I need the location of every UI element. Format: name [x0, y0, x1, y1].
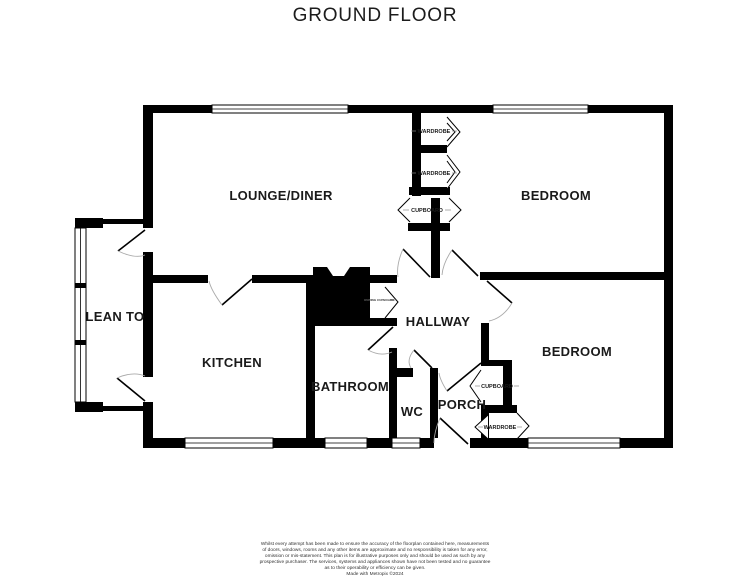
door-entrance — [440, 418, 468, 444]
disclaimer: Whilst every attempt has been made to en… — [0, 542, 750, 578]
room-label-porch: PORCH — [438, 397, 486, 412]
door-wc — [414, 350, 432, 368]
door-lean-to-upper — [118, 230, 145, 251]
room-label-bathroom: BATHROOM — [311, 379, 389, 394]
room-label-bedroom-top: BEDROOM — [521, 188, 591, 203]
walls — [75, 105, 673, 448]
fixture-label-airing-cupboard: AIRING CUPBOARD — [366, 298, 396, 302]
bifold-wardrobe-porch-east — [517, 413, 529, 439]
fixture-label-wardrobe-2: WARDROBE — [418, 171, 451, 177]
room-label-kitchen: KITCHEN — [202, 355, 262, 370]
fixture-label-cupboard-hall: CUPBOARD — [411, 208, 443, 214]
disclaimer-made-with: Made with Metropix ©2024 — [0, 572, 750, 578]
room-label-lounge-diner: LOUNGE/DINER — [229, 188, 333, 203]
door-kitchen — [222, 279, 252, 305]
fixture-label-wardrobe-1: WARDROBE — [418, 129, 451, 135]
fixture-label-wardrobe-porch: WARDROBE — [484, 425, 517, 431]
fixture-label-cupboard-porch: CUPBOARD — [481, 384, 513, 390]
room-label-wc: WC — [401, 404, 424, 419]
door-lounge — [403, 249, 430, 277]
floorplan-page: GROUND FLOOR — [0, 0, 750, 586]
door-airing-cupboard — [385, 287, 398, 318]
room-label-hallway: HALLWAY — [406, 314, 470, 329]
door-bedroom-bottom — [487, 281, 512, 303]
room-label-bedroom-bottom: BEDROOM — [542, 344, 612, 359]
room-label-lean-to: LEAN TO — [86, 309, 145, 324]
door-bedroom-top — [452, 250, 478, 276]
door-bathroom — [368, 327, 393, 350]
door-lean-to-lower — [117, 378, 145, 401]
floorplan-canvas: LOUNGE/DINER BEDROOM BEDROOM LEAN TO KIT… — [0, 0, 750, 540]
